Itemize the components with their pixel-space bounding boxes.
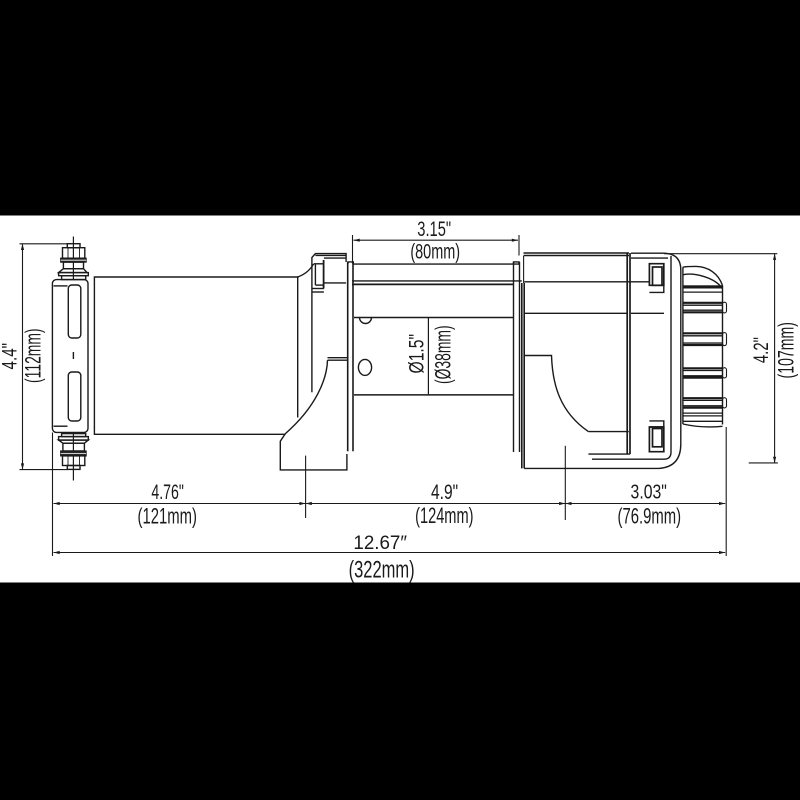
svg-text:(322mm): (322mm)	[349, 556, 415, 583]
svg-text:(112mm): (112mm)	[21, 328, 46, 383]
svg-text:4.76": 4.76"	[151, 481, 184, 504]
svg-text:(124mm): (124mm)	[415, 503, 473, 528]
svg-text:3.15": 3.15"	[417, 217, 451, 241]
svg-text:(Ø38mm): (Ø38mm)	[431, 325, 456, 384]
svg-text:4.4": 4.4"	[0, 343, 22, 370]
svg-text:Ø1.5": Ø1.5"	[406, 334, 429, 374]
svg-text:3.03": 3.03"	[631, 480, 667, 503]
svg-text:(80mm): (80mm)	[410, 240, 460, 264]
svg-text:4.2": 4.2"	[750, 337, 773, 363]
svg-text:(76.9mm): (76.9mm)	[618, 504, 682, 529]
svg-text:(107mm): (107mm)	[773, 322, 798, 378]
svg-text:12.67″: 12.67″	[353, 532, 407, 554]
svg-text:(121mm): (121mm)	[138, 503, 197, 528]
svg-text:4.9": 4.9"	[431, 481, 458, 504]
